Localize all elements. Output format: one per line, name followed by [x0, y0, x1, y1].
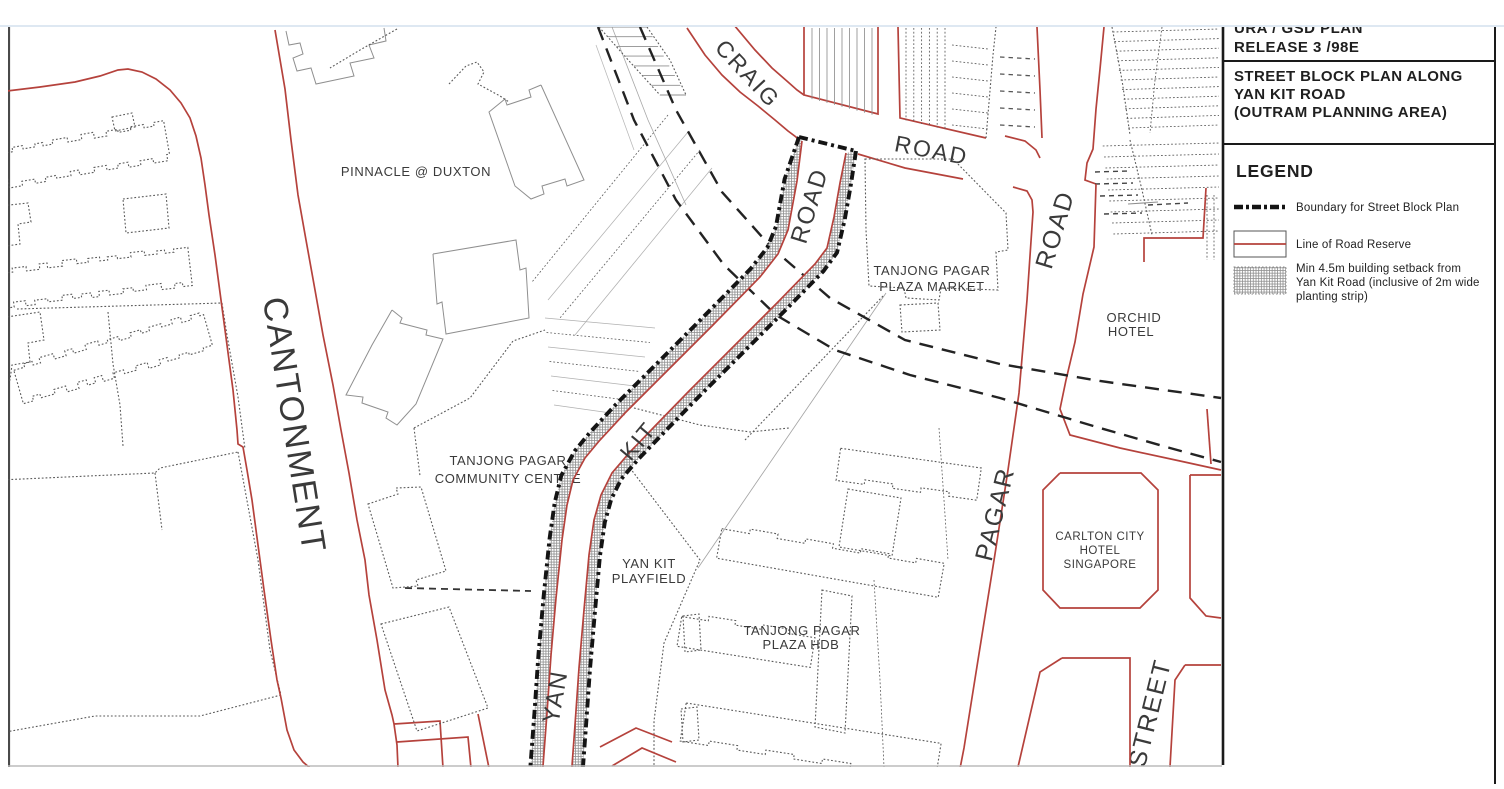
svg-text:TANJONG PAGAR: TANJONG PAGAR [873, 263, 990, 278]
svg-text:HOTEL: HOTEL [1108, 324, 1154, 339]
svg-text:SINGAPORE: SINGAPORE [1064, 559, 1137, 571]
svg-text:PINNACLE @ DUXTON: PINNACLE @ DUXTON [341, 164, 491, 179]
svg-text:CARLTON CITY: CARLTON CITY [1055, 531, 1144, 543]
svg-text:YAN KIT: YAN KIT [622, 556, 676, 571]
svg-text:TANJONG PAGAR: TANJONG PAGAR [743, 623, 860, 638]
svg-text:PLAYFIELD: PLAYFIELD [612, 571, 687, 586]
svg-text:planting strip): planting strip) [1296, 291, 1368, 303]
svg-text:LEGEND: LEGEND [1236, 161, 1314, 181]
svg-text:PLAZA HDB: PLAZA HDB [763, 637, 840, 652]
svg-text:(OUTRAM PLANNING AREA): (OUTRAM PLANNING AREA) [1234, 104, 1447, 121]
svg-text:RELEASE 3 /98E: RELEASE 3 /98E [1234, 39, 1359, 56]
svg-text:HOTEL: HOTEL [1080, 545, 1121, 557]
svg-text:Min 4.5m building setback from: Min 4.5m building setback from [1296, 263, 1461, 275]
svg-text:Line of Road Reserve: Line of Road Reserve [1296, 239, 1411, 251]
svg-text:YAN KIT ROAD: YAN KIT ROAD [1234, 86, 1346, 103]
svg-text:ORCHID: ORCHID [1107, 310, 1162, 325]
svg-text:PLAZA MARKET: PLAZA MARKET [879, 279, 984, 294]
svg-text:Boundary for Street Block Plan: Boundary for Street Block Plan [1296, 202, 1459, 214]
svg-text:Yan Kit Road (inclusive of 2m: Yan Kit Road (inclusive of 2m wide [1296, 277, 1480, 289]
svg-text:STREET BLOCK PLAN ALONG: STREET BLOCK PLAN ALONG [1234, 68, 1463, 85]
svg-text:TANJONG PAGAR: TANJONG PAGAR [449, 453, 566, 468]
